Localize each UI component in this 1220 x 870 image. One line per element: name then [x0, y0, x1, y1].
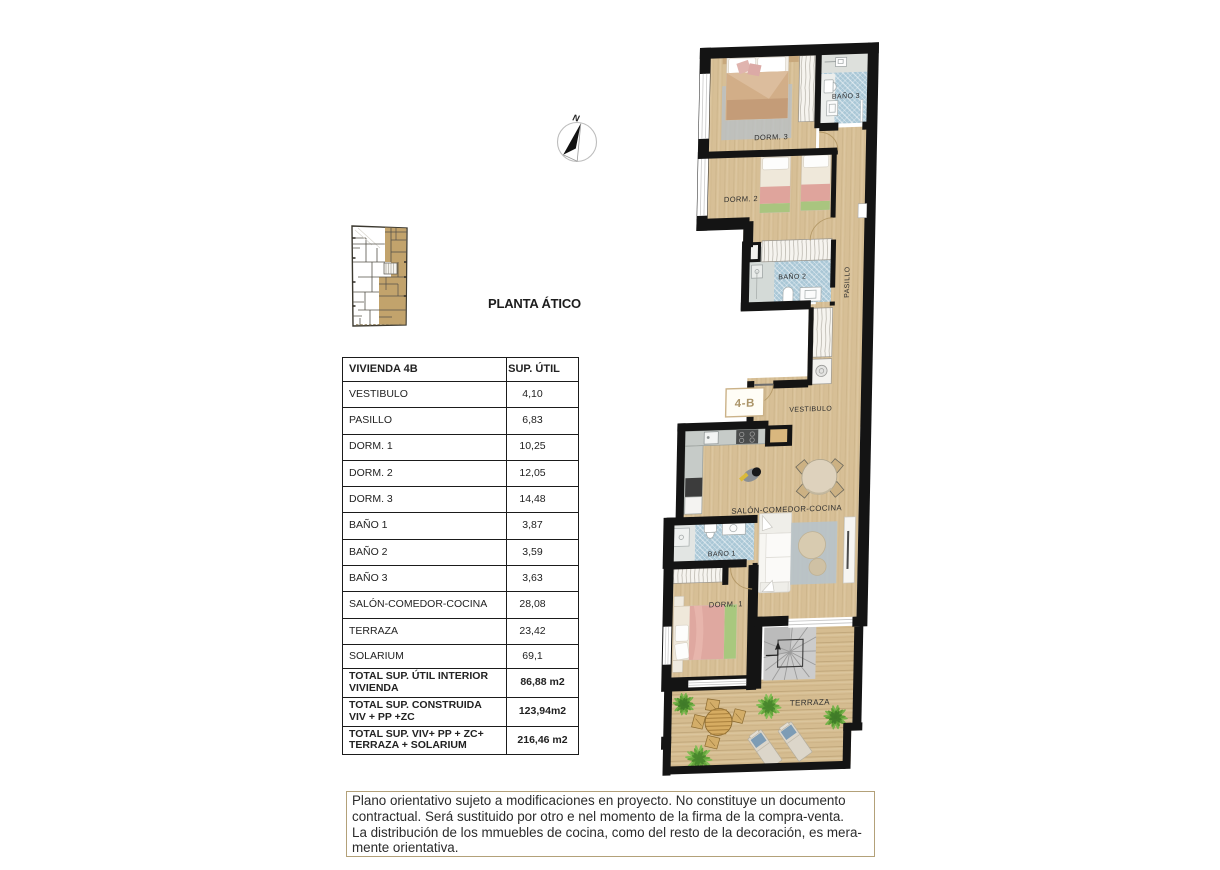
svg-text:PASILLO: PASILLO: [844, 266, 852, 298]
svg-text:DORM. 2: DORM. 2: [724, 194, 758, 204]
svg-text:4-B: 4-B: [735, 398, 756, 411]
svg-text:DORM. 1: DORM. 1: [709, 599, 743, 609]
svg-text:TERRAZA: TERRAZA: [790, 697, 831, 707]
svg-text:N: N: [572, 112, 581, 123]
svg-text:DORM. 3: DORM. 3: [754, 132, 788, 142]
svg-text:VESTIBULO: VESTIBULO: [789, 406, 832, 414]
